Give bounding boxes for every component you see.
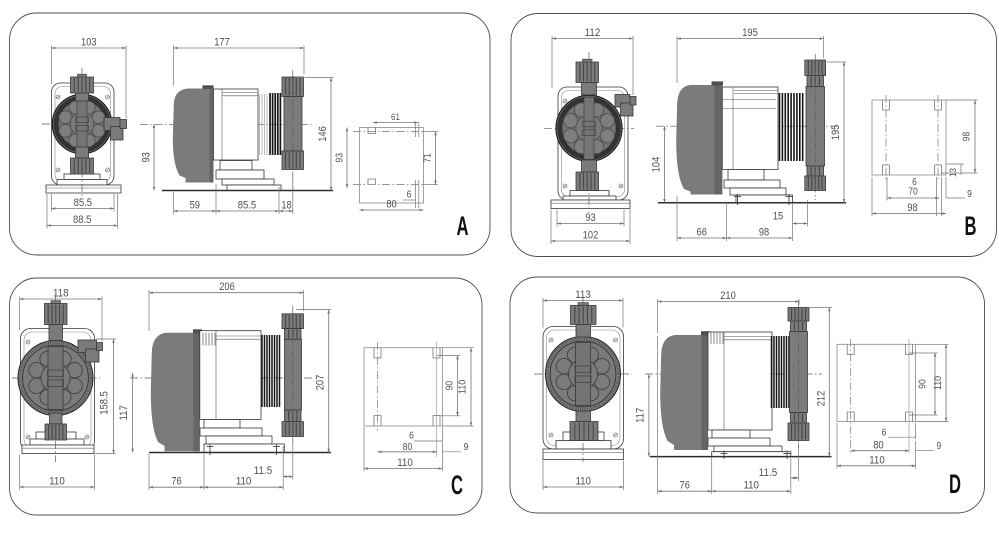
svg-text:110: 110	[397, 457, 413, 469]
svg-text:90: 90	[445, 381, 456, 391]
svg-text:98: 98	[907, 202, 917, 214]
svg-text:70: 70	[908, 187, 918, 198]
svg-text:6: 6	[882, 428, 887, 439]
svg-text:90: 90	[918, 379, 929, 389]
svg-text:210: 210	[720, 290, 736, 302]
svg-text:D: D	[949, 469, 961, 499]
svg-text:9: 9	[464, 442, 469, 453]
svg-text:A: A	[457, 211, 469, 241]
svg-text:195: 195	[742, 27, 758, 39]
svg-text:C: C	[451, 470, 463, 500]
svg-text:110: 110	[933, 376, 944, 390]
svg-text:13: 13	[948, 168, 959, 177]
svg-text:93: 93	[141, 152, 153, 162]
svg-text:59: 59	[190, 200, 200, 212]
svg-text:102: 102	[583, 230, 599, 242]
svg-text:110: 110	[49, 476, 65, 488]
svg-text:104: 104	[651, 157, 663, 173]
svg-text:61: 61	[391, 112, 400, 123]
svg-text:9: 9	[967, 189, 972, 200]
svg-text:66: 66	[697, 227, 707, 239]
svg-text:88.5: 88.5	[73, 214, 91, 226]
svg-text:110: 110	[869, 454, 885, 466]
svg-text:118: 118	[53, 288, 69, 300]
svg-text:117: 117	[635, 408, 647, 424]
svg-text:110: 110	[743, 480, 759, 492]
svg-text:18: 18	[281, 200, 291, 212]
svg-text:93: 93	[585, 212, 595, 224]
svg-text:93: 93	[335, 153, 346, 163]
svg-text:212: 212	[816, 391, 828, 407]
svg-text:80: 80	[403, 442, 413, 453]
svg-text:117: 117	[118, 405, 130, 421]
svg-text:B: B	[965, 211, 977, 241]
svg-text:146: 146	[317, 126, 329, 142]
svg-text:76: 76	[680, 480, 690, 492]
svg-text:71: 71	[423, 153, 434, 163]
svg-text:11.5: 11.5	[759, 467, 777, 479]
svg-text:103: 103	[81, 37, 97, 49]
svg-text:85.5: 85.5	[74, 197, 92, 209]
svg-text:85.5: 85.5	[238, 200, 256, 212]
svg-text:98: 98	[962, 131, 973, 141]
svg-text:158.5: 158.5	[99, 391, 111, 415]
svg-text:80: 80	[873, 440, 883, 452]
svg-text:110: 110	[458, 379, 469, 393]
svg-text:206: 206	[219, 281, 235, 293]
svg-text:11.5: 11.5	[254, 465, 272, 477]
svg-text:6: 6	[409, 431, 414, 442]
svg-text:76: 76	[171, 476, 181, 488]
svg-text:177: 177	[214, 37, 230, 49]
svg-text:110: 110	[236, 476, 252, 488]
svg-text:113: 113	[575, 289, 591, 301]
svg-text:15: 15	[773, 211, 783, 223]
svg-text:98: 98	[759, 227, 769, 239]
svg-text:110: 110	[575, 476, 591, 488]
svg-text:80: 80	[386, 199, 396, 211]
svg-text:6: 6	[407, 190, 412, 201]
svg-text:195: 195	[830, 125, 842, 141]
svg-text:112: 112	[585, 27, 601, 39]
svg-text:9: 9	[937, 441, 942, 452]
svg-text:207: 207	[315, 375, 327, 391]
